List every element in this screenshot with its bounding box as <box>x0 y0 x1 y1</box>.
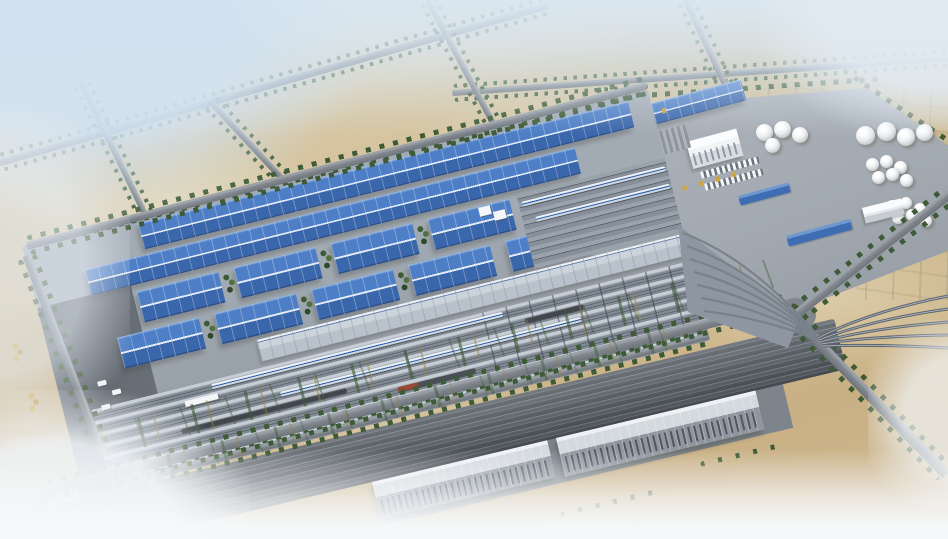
haze-top-right <box>760 0 948 130</box>
storage-tank-medium-5 <box>886 168 899 181</box>
storage-tank-medium-1 <box>866 158 879 171</box>
storage-tank-medium-2 <box>880 155 893 168</box>
storage-tank-large-west-4 <box>765 138 780 153</box>
storage-tank-medium-6 <box>900 174 913 187</box>
storage-tank-medium-4 <box>872 171 885 184</box>
haze-bottom <box>0 449 948 539</box>
aerial-rendering-canvas <box>0 0 948 539</box>
throat-pavement-wedge <box>678 225 800 348</box>
haze-left-edge <box>0 110 130 430</box>
